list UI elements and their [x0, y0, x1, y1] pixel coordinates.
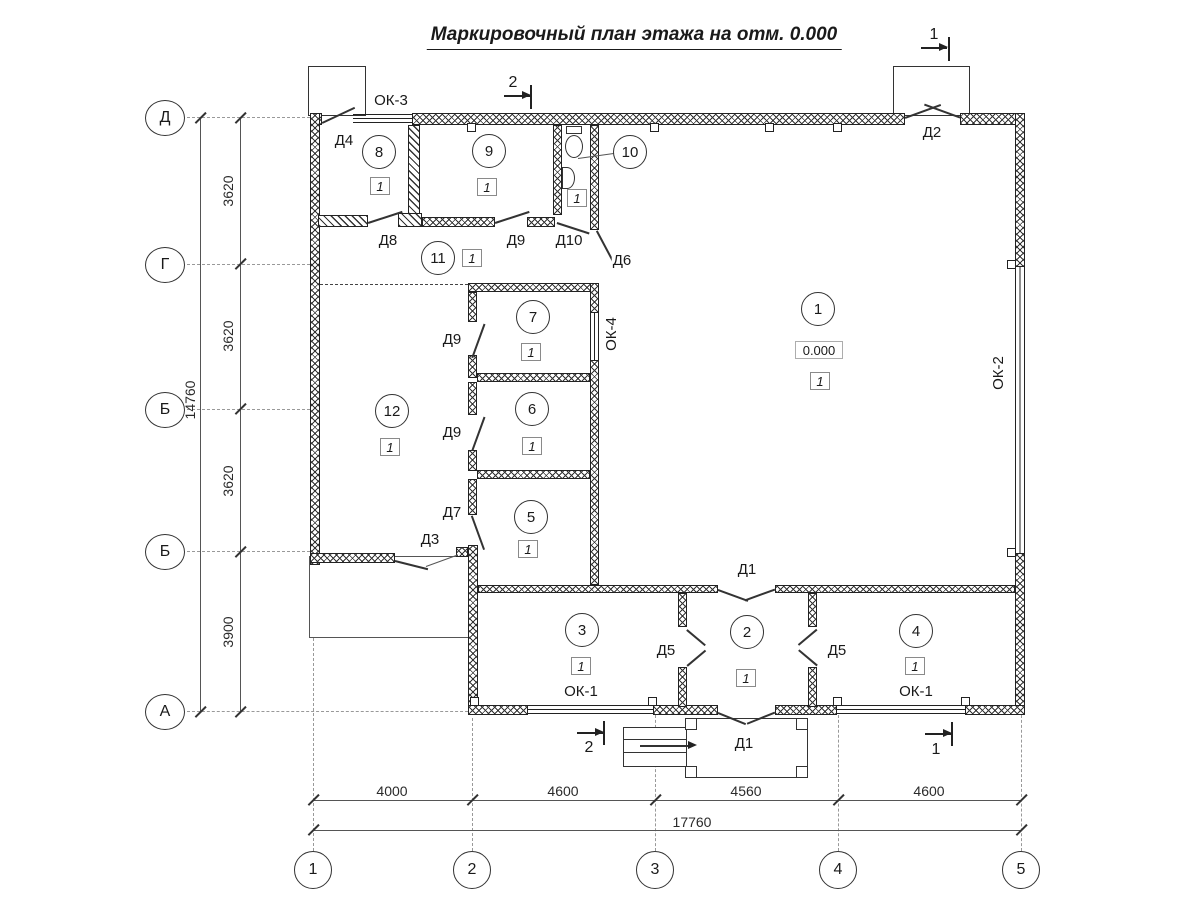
- partition-room7-6: [477, 373, 590, 382]
- room-circle-9: 9: [472, 134, 506, 168]
- room-marker-9: 1: [477, 178, 497, 196]
- axis-letter: Д: [160, 109, 171, 127]
- door-label-text: Д10: [556, 232, 583, 249]
- elevation-value: 0.000: [803, 343, 836, 358]
- dim-line-left-total: [200, 118, 201, 712]
- door-label-d1-bottom: Д1: [734, 736, 755, 753]
- marker-value: 1: [527, 345, 534, 360]
- marker-value: 1: [911, 659, 918, 674]
- axis-number: 4: [834, 861, 843, 879]
- partition-wc-jamb: [527, 217, 555, 227]
- axis-circle-3: 3: [636, 851, 674, 889]
- wall-room7-left-a: [468, 292, 477, 322]
- door-label-text: Д8: [379, 232, 398, 249]
- door-label-text: Д2: [923, 124, 942, 141]
- room-circle-6: 6: [515, 392, 549, 426]
- wall-hall-left-upper: [590, 125, 599, 230]
- door-label-d5-left: Д5: [656, 643, 677, 660]
- door-leaf-d1-top-r: [745, 589, 776, 601]
- pier-mark: [1007, 260, 1016, 269]
- partition-room8-block: [398, 213, 422, 227]
- room-circle-12: 12: [375, 394, 409, 428]
- dim-value: 4560: [730, 783, 761, 799]
- wall-hall-left-mid: [590, 283, 599, 313]
- door-leaf-d9-room6: [471, 417, 485, 451]
- marker-value: 1: [577, 659, 584, 674]
- wall-wc-left: [553, 125, 562, 215]
- axis-letter: Б: [160, 543, 171, 561]
- door-label-d4: Д4: [334, 133, 355, 150]
- axis-line-g: [187, 264, 310, 265]
- room-circle-8: 8: [362, 135, 396, 169]
- door-label-text: Д9: [507, 232, 526, 249]
- room-number: 10: [622, 144, 639, 161]
- marker-value: 1: [386, 440, 393, 455]
- wall-axis-b-lower: [310, 553, 395, 563]
- drawing-title: Маркировочный план этажа на отм. 0.000: [427, 24, 842, 50]
- wall-room7-top: [468, 283, 598, 292]
- room-number: 6: [528, 401, 536, 418]
- axis-number: 3: [651, 861, 660, 879]
- axis-circle-5: 5: [1002, 851, 1040, 889]
- toilet-bowl-icon: [565, 135, 583, 158]
- pier-mark: [1007, 548, 1016, 557]
- room-marker-6: 1: [522, 437, 542, 455]
- door-leaf-d5r-a: [798, 629, 817, 646]
- axis-circle-b1: Б: [145, 392, 185, 428]
- pier-mark: [765, 123, 774, 132]
- section-number: 1: [930, 26, 939, 43]
- partition-room8-9: [408, 125, 420, 222]
- wall-room6-left-b: [468, 450, 477, 471]
- partition-room2-4-lower: [808, 667, 817, 707]
- door-leaf-d5l-b: [687, 650, 706, 667]
- door-label-text: Д6: [613, 252, 632, 269]
- dim-value: 4600: [547, 783, 578, 799]
- dim-label-left-1: 3620: [220, 175, 236, 206]
- window-label-text: ОК-2: [990, 356, 1007, 390]
- room-number: 2: [743, 624, 751, 641]
- room-number: 9: [485, 143, 493, 160]
- partition-room2-4-upper: [808, 593, 817, 627]
- marker-value: 1: [376, 179, 383, 194]
- section-2-bottom-bar: [603, 721, 605, 745]
- porch-top-left: [308, 66, 366, 116]
- dim-value: 3900: [220, 616, 236, 647]
- room-circle-2: 2: [730, 615, 764, 649]
- dim-label-left-2: 3620: [220, 320, 236, 351]
- window-label-text: ОК-4: [603, 317, 620, 351]
- axis-line-d: [187, 117, 310, 118]
- axis-circle-1: 1: [294, 851, 332, 889]
- section-2-bottom-number: 2: [585, 739, 594, 757]
- wall-bottom-4: [965, 705, 1025, 715]
- room-marker-8: 1: [370, 177, 390, 195]
- door-label-d9-top: Д9: [506, 233, 527, 250]
- room-circle-7: 7: [516, 300, 550, 334]
- pier-mark: [833, 697, 842, 706]
- dim-label-bottom-2: 4600: [547, 783, 578, 799]
- section-1-top-number: 1: [930, 26, 939, 44]
- stairs-arrowhead: [688, 741, 697, 749]
- marker-value: 1: [524, 542, 531, 557]
- wall-hall-left-lower: [590, 360, 599, 585]
- door-label-d6: Д6: [612, 253, 633, 270]
- door-leaf-d9-top: [495, 211, 530, 224]
- floor-plan-sheet: Маркировочный план этажа на отм. 0.000: [0, 0, 1200, 900]
- axis-circle-a: А: [145, 694, 185, 730]
- door-leaf-d9-room7: [471, 324, 485, 358]
- window-ok2-opening: [1015, 267, 1025, 553]
- door-label-d5-right: Д5: [827, 643, 848, 660]
- window-ok3-opening: [353, 114, 412, 123]
- room-number: 1: [814, 301, 822, 318]
- section-1-bottom-bar: [951, 722, 953, 746]
- section-number: 2: [509, 74, 518, 91]
- dim-label-left-4: 3900: [220, 616, 236, 647]
- room-number: 11: [430, 250, 446, 267]
- axis-number: 2: [468, 861, 477, 879]
- door-label-d1-top: Д1: [737, 562, 758, 579]
- pier-mark: [648, 697, 657, 706]
- sink-icon: [562, 167, 575, 189]
- porch-corner-mark: [685, 718, 697, 730]
- stairs-arrow: [640, 745, 692, 747]
- dim-line-left-segments: [240, 118, 241, 712]
- window-ok4-opening: [590, 313, 599, 360]
- door-label-text: Д7: [443, 504, 462, 521]
- axis-line-a: [187, 711, 468, 712]
- elevation-mark: 0.000: [795, 341, 843, 359]
- dim-label-bottom-1: 4000: [376, 783, 407, 799]
- window-label-ok4: ОК-4: [604, 317, 621, 351]
- dim-label-bottom-total: 17760: [673, 814, 712, 830]
- wall-lowerblock-top-left: [478, 585, 718, 593]
- room-marker-3: 1: [571, 657, 591, 675]
- window-label-ok3: ОК-3: [373, 93, 409, 110]
- room-marker-11: 1: [462, 249, 482, 267]
- wall-left: [310, 113, 320, 565]
- window-label-ok1-right: ОК-1: [898, 684, 934, 701]
- section-2-top-number: 2: [509, 74, 518, 92]
- door-label-text: Д3: [421, 531, 440, 548]
- section-number: 2: [585, 739, 594, 756]
- room-marker-2: 1: [736, 669, 756, 687]
- door-label-text: Д5: [657, 642, 676, 659]
- marker-value: 1: [468, 251, 475, 266]
- marker-value: 1: [742, 671, 749, 686]
- wall-d3-jamb: [456, 547, 468, 557]
- axis-line-b2: [187, 551, 310, 552]
- corridor-dashed-line: [320, 284, 468, 285]
- room-marker-12: 1: [380, 438, 400, 456]
- wall-right-upper: [1015, 113, 1025, 267]
- window-ok1-right-opening: [837, 705, 965, 714]
- door-label-text: Д4: [335, 132, 354, 149]
- section-1-top-arrow: [939, 43, 948, 51]
- dim-value: 3620: [220, 175, 236, 206]
- wall-lower-left: [468, 545, 478, 715]
- room-number: 12: [384, 403, 401, 420]
- pier-mark: [961, 697, 970, 706]
- axis-circle-b2: Б: [145, 534, 185, 570]
- door-label-text: Д1: [735, 735, 754, 752]
- room-circle-10: 10: [613, 135, 647, 169]
- room-circle-1: 1: [801, 292, 835, 326]
- room-number: 4: [912, 623, 920, 640]
- axis-circle-4: 4: [819, 851, 857, 889]
- partition-room9-bottom: [422, 217, 495, 227]
- marker-value: 1: [483, 180, 490, 195]
- room-circle-11: 11: [421, 241, 455, 275]
- terrace-bottom-left: [309, 556, 470, 638]
- axis-line-b1: [187, 409, 310, 410]
- wall-bottom-1: [468, 705, 528, 715]
- dim-value: 3620: [220, 320, 236, 351]
- door-label-d2: Д2: [922, 125, 943, 142]
- axis-number: 5: [1017, 861, 1026, 879]
- marker-value: 1: [573, 191, 580, 206]
- axis-letter: Г: [161, 256, 170, 274]
- wall-room6-left-a: [468, 382, 477, 415]
- axis-number: 1: [309, 861, 318, 879]
- window-ok1-left-opening: [528, 705, 653, 714]
- dim-value: 4600: [913, 783, 944, 799]
- door-label-text: Д1: [738, 561, 757, 578]
- window-label-ok2: ОК-2: [991, 356, 1008, 390]
- dim-line-bottom-total: [313, 830, 1021, 831]
- axis-line-2: [472, 718, 473, 851]
- door-label-d10: Д10: [555, 233, 584, 250]
- axis-circle-2: 2: [453, 851, 491, 889]
- wall-room5-left: [468, 479, 477, 515]
- door-label-text: Д5: [828, 642, 847, 659]
- window-label-ok1-left: ОК-1: [563, 684, 599, 701]
- room-number: 7: [529, 309, 537, 326]
- room-marker-5: 1: [518, 540, 538, 558]
- door-label-d3: Д3: [420, 532, 441, 549]
- door-label-text: Д9: [443, 331, 462, 348]
- section-number: 1: [932, 741, 941, 758]
- section-1-top-bar: [948, 37, 950, 61]
- stairs: [623, 727, 687, 767]
- dim-label-bottom-3: 4560: [730, 783, 761, 799]
- window-label-text: ОК-1: [564, 683, 598, 700]
- axis-letter: А: [160, 703, 171, 721]
- partition-room3-2-upper: [678, 593, 687, 627]
- wall-bottom-3: [775, 705, 837, 715]
- room-circle-3: 3: [565, 613, 599, 647]
- axis-line-1: [313, 638, 314, 851]
- door-leaf-d5l-a: [687, 629, 706, 646]
- porch-corner-mark: [796, 766, 808, 778]
- wall-room7-left-b: [468, 355, 477, 378]
- door-label-d9-room7: Д9: [442, 332, 463, 349]
- dim-value: 3620: [220, 465, 236, 496]
- porch-corner-mark: [685, 766, 697, 778]
- axis-circle-d: Д: [145, 100, 185, 136]
- pier-mark: [650, 123, 659, 132]
- pier-mark: [470, 697, 479, 706]
- porch-corner-mark: [796, 718, 808, 730]
- dim-value: 4000: [376, 783, 407, 799]
- toilet-tank-icon: [566, 126, 582, 134]
- pier-mark: [467, 123, 476, 132]
- wall-lowerblock-top-right: [775, 585, 1015, 593]
- room-number: 8: [375, 144, 383, 161]
- door-label-d8: Д8: [378, 233, 399, 250]
- door-leaf-d5r-b: [798, 650, 817, 667]
- room-number: 3: [578, 622, 586, 639]
- room-marker-7: 1: [521, 343, 541, 361]
- partition-room3-2-lower: [678, 667, 687, 707]
- window-label-text: ОК-1: [899, 683, 933, 700]
- window-label-text: ОК-3: [374, 92, 408, 109]
- partition-room6-5: [477, 470, 590, 479]
- section-2-top-bar: [530, 85, 532, 109]
- pier-mark: [833, 123, 842, 132]
- door-label-d7: Д7: [442, 505, 463, 522]
- axis-letter: Б: [160, 401, 171, 419]
- axis-circle-g: Г: [145, 247, 185, 283]
- marker-value: 1: [528, 439, 535, 454]
- section-1-bottom-number: 1: [932, 741, 941, 759]
- partition-room8-bottom: [318, 215, 368, 227]
- dim-label-left-3: 3620: [220, 465, 236, 496]
- room-marker-10: 1: [567, 189, 587, 207]
- door-label-text: Д9: [443, 424, 462, 441]
- wall-right-lower: [1015, 553, 1025, 715]
- room-circle-4: 4: [899, 614, 933, 648]
- room-circle-5: 5: [514, 500, 548, 534]
- room-marker-1: 1: [810, 372, 830, 390]
- door-label-d9-room6: Д9: [442, 425, 463, 442]
- marker-value: 1: [816, 374, 823, 389]
- dim-line-bottom-segments: [313, 800, 1021, 801]
- room-number: 5: [527, 509, 535, 526]
- room-marker-4: 1: [905, 657, 925, 675]
- dim-label-bottom-4: 4600: [913, 783, 944, 799]
- dim-value: 17760: [673, 814, 712, 830]
